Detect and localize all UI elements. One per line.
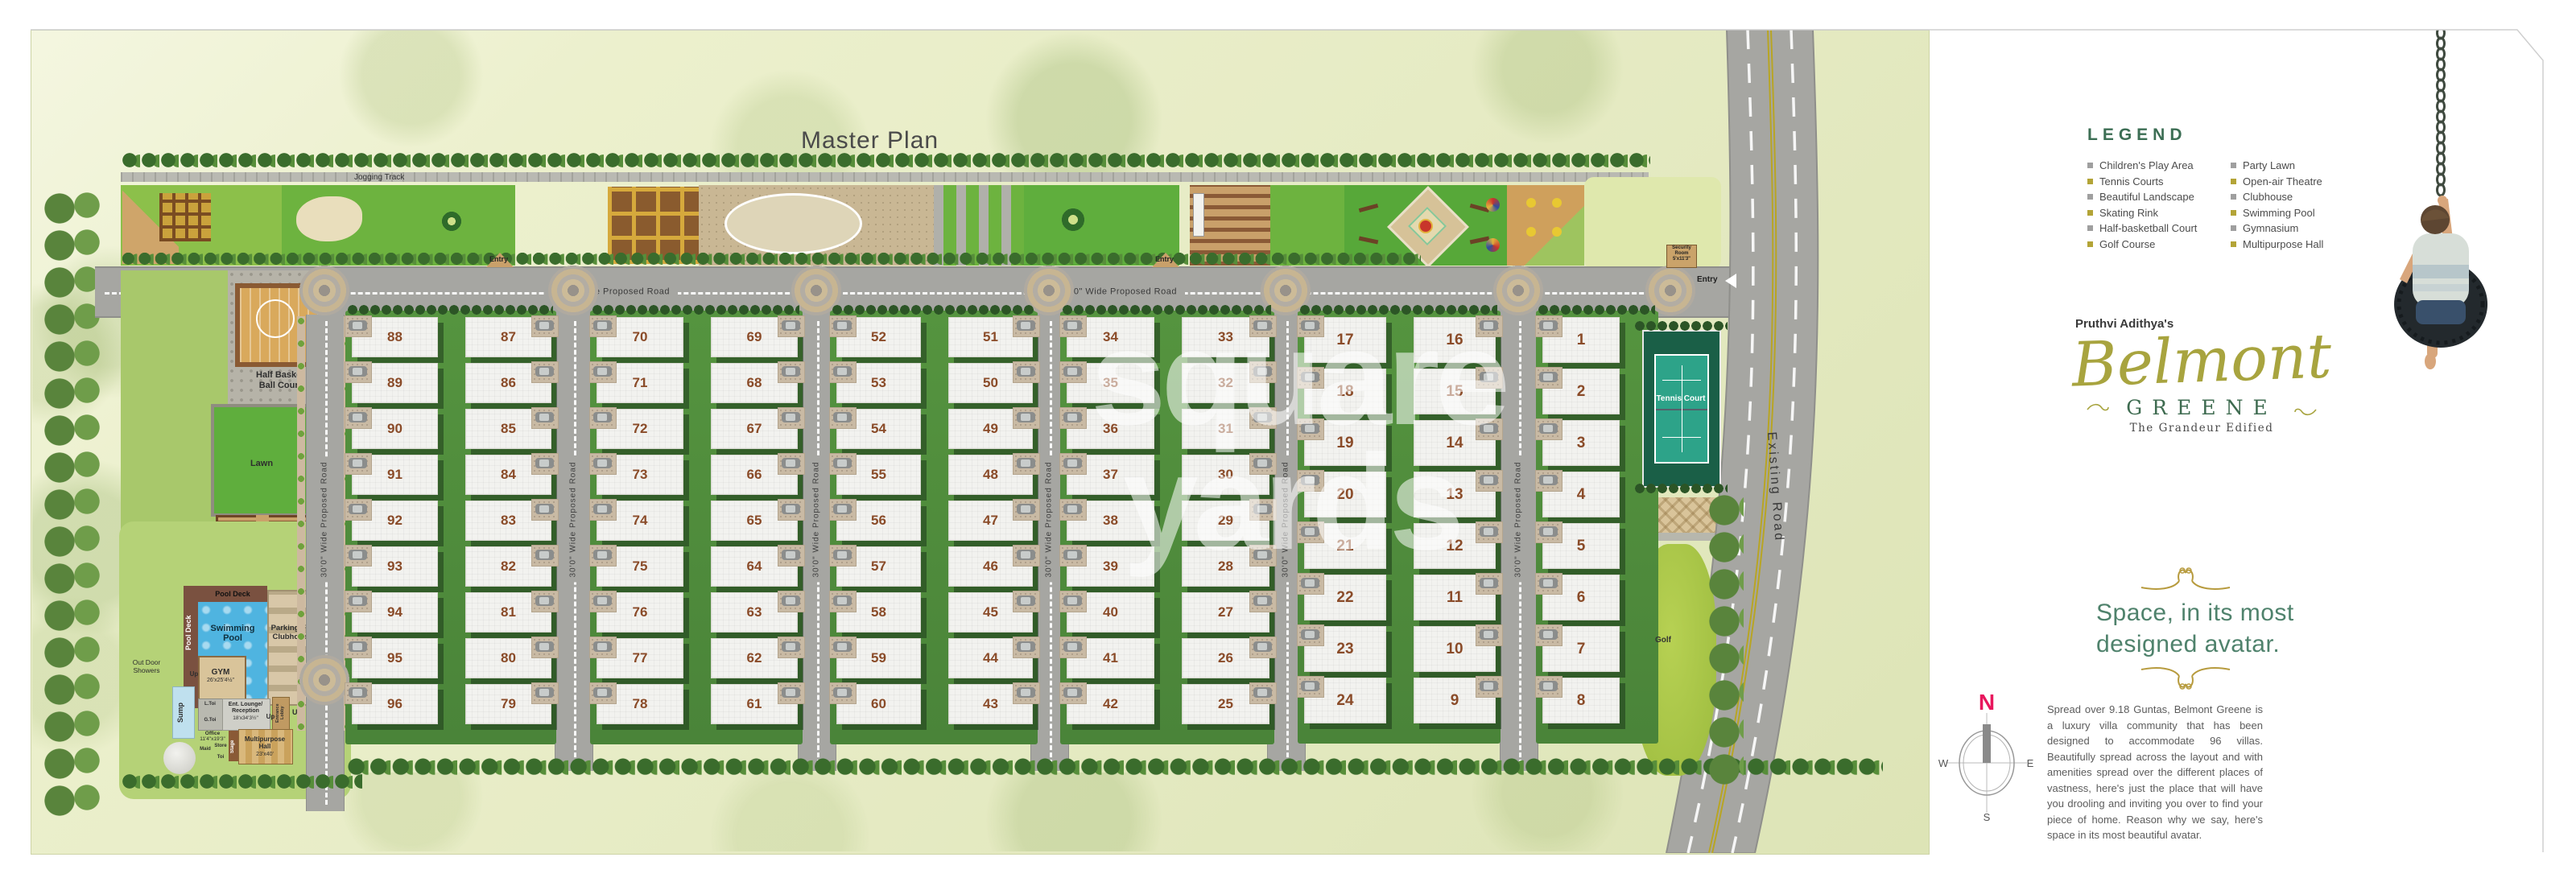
legend-bullet: [2231, 163, 2236, 168]
car-icon: [1253, 412, 1272, 422]
plot-number: 93: [387, 558, 402, 575]
car-icon: [535, 550, 554, 560]
plot-number: 63: [747, 604, 762, 620]
plot-number: 80: [501, 650, 516, 666]
car-icon: [1017, 458, 1035, 468]
car-icon: [1539, 372, 1558, 382]
legend-label: Multipurpose Hall: [2243, 238, 2323, 250]
plot: 91: [352, 455, 438, 495]
legend-label: Golf Course: [2099, 238, 2155, 250]
plot-number: 22: [1336, 589, 1353, 607]
driveway-carpad: [1059, 315, 1087, 337]
plot: 6: [1542, 575, 1620, 620]
legend-column-2: Party LawnOpen-air TheatreClubhouseSwimm…: [2231, 158, 2323, 252]
plot: 5: [1542, 523, 1620, 569]
ornament-bottom: [2137, 665, 2234, 694]
plot: 79: [465, 684, 551, 724]
driveway-carpad: [829, 453, 857, 475]
car-icon: [1480, 578, 1498, 588]
plot: 85: [465, 409, 551, 449]
driveway-carpad: [1297, 418, 1324, 440]
car-icon: [782, 687, 800, 698]
driveway-carpad: [778, 682, 805, 704]
driveway-carpad: [1476, 573, 1503, 595]
plot: 95: [352, 638, 438, 678]
car-icon: [1301, 475, 1319, 485]
plot-number: 46: [983, 558, 998, 575]
plot-number: 29: [1218, 513, 1233, 529]
plot: 31: [1182, 409, 1269, 449]
car-icon: [1253, 641, 1272, 652]
legend-label: Party Lawn: [2243, 159, 2295, 171]
driveway-carpad: [778, 545, 805, 567]
car-icon: [593, 320, 612, 331]
plot-number: 48: [983, 467, 998, 483]
plot-number: 24: [1336, 692, 1353, 710]
plot-number: 11: [1447, 589, 1463, 607]
driveway-carpad: [1249, 361, 1277, 383]
plot: 48: [948, 455, 1033, 495]
stage-label: Stage: [230, 734, 235, 760]
driveway-carpad: [1013, 453, 1040, 475]
plot-number: 40: [1103, 604, 1118, 620]
car-icon: [782, 595, 800, 606]
vertical-road-label: 30'0" Wide Proposed Road: [1514, 431, 1523, 608]
driveway-carpad: [531, 637, 559, 658]
car-icon: [1301, 629, 1319, 640]
driveway-carpad: [1476, 676, 1503, 698]
car-icon: [593, 595, 612, 606]
car-icon: [1017, 504, 1035, 514]
plot: 21: [1304, 523, 1386, 569]
car-icon: [1017, 320, 1035, 331]
fitness-dot-2: [1552, 198, 1562, 208]
pergola: [159, 193, 211, 241]
plot: 75: [597, 546, 683, 587]
plot-number: 82: [501, 558, 516, 575]
plot: 34: [1067, 317, 1154, 357]
driveway-carpad: [345, 315, 372, 337]
plot: 51: [948, 317, 1033, 357]
driveway-carpad: [1297, 573, 1324, 595]
car-icon: [349, 366, 367, 377]
legend-bullet: [2087, 194, 2093, 200]
plot: 70: [597, 317, 683, 357]
plot-number: 31: [1218, 421, 1233, 437]
legend-item: Tennis Courts: [2087, 174, 2197, 190]
driveway-carpad: [589, 545, 617, 567]
plot-number: 73: [633, 467, 648, 483]
plot-number: 41: [1103, 650, 1118, 666]
bottom-tree-row-1: [346, 756, 1883, 785]
plot-number: 52: [871, 329, 886, 345]
driveway-carpad: [1535, 573, 1563, 595]
plot-number: 89: [387, 375, 402, 391]
driveway-carpad: [345, 545, 372, 567]
driveway-carpad: [1059, 682, 1087, 704]
driveway-carpad: [1013, 682, 1040, 704]
plot-number: 19: [1336, 435, 1353, 452]
plot: 59: [836, 638, 921, 678]
driveway-carpad: [829, 361, 857, 383]
driveway-carpad: [1013, 361, 1040, 383]
plot-number: 26: [1218, 650, 1233, 666]
svg-text:S: S: [1984, 811, 1991, 822]
plot-number: 59: [871, 650, 886, 666]
plot: 81: [465, 592, 551, 633]
plot-number: 7: [1577, 641, 1586, 658]
plot-number: 25: [1218, 696, 1233, 712]
car-icon: [349, 504, 367, 514]
driveway-carpad: [1476, 470, 1503, 492]
driveway-carpad: [589, 407, 617, 429]
plot-number: 43: [983, 696, 998, 712]
plot: 37: [1067, 455, 1154, 495]
car-icon: [833, 595, 852, 606]
legend-column-1: Children's Play AreaTennis CourtsBeautif…: [2087, 158, 2197, 252]
car-icon: [1063, 687, 1082, 698]
plot-number: 92: [387, 513, 402, 529]
plot-number: 95: [387, 650, 402, 666]
legend-label: Beautiful Landscape: [2099, 191, 2194, 203]
legend-heading: LEGEND: [2087, 126, 2187, 145]
plot: 76: [597, 592, 683, 633]
car-icon: [782, 641, 800, 652]
brand-name-script: Belmont: [2048, 318, 2356, 402]
driveway-carpad: [1249, 407, 1277, 429]
plot: 23: [1304, 626, 1386, 672]
plot-number: 53: [871, 375, 886, 391]
plot-number: 6: [1577, 589, 1586, 607]
plot: 55: [836, 455, 921, 495]
plot-number: 51: [983, 329, 998, 345]
plot-number: 23: [1336, 641, 1353, 658]
reception-label: Ent. Lounge/ Reception: [223, 702, 268, 715]
driveway-carpad: [531, 591, 559, 612]
plot: 57: [836, 546, 921, 587]
plot: 18: [1304, 369, 1386, 414]
plot: 33: [1182, 317, 1269, 357]
car-icon: [1017, 641, 1035, 652]
plot: 14: [1414, 420, 1496, 466]
plot-number: 81: [501, 604, 516, 620]
car-icon: [593, 550, 612, 560]
plot: 65: [711, 501, 798, 541]
car-icon: [1539, 681, 1558, 691]
car-icon: [1253, 687, 1272, 698]
plot-number: 50: [983, 375, 998, 391]
car-icon: [1539, 423, 1558, 434]
driveway-carpad: [1297, 676, 1324, 698]
legend-bullet: [2231, 241, 2236, 247]
brochure-page: Master Plan Jogging Track Security Room …: [0, 0, 2576, 886]
sump-label: Sump: [176, 694, 184, 731]
driveway-carpad: [1297, 624, 1324, 646]
tennis-court-label: Tennis Court: [1645, 394, 1716, 403]
description: Spread over 9.18 Guntas, Belmont Greene …: [2047, 702, 2263, 843]
car-icon: [1253, 320, 1272, 331]
car-icon: [1539, 475, 1558, 485]
plot: 43: [948, 684, 1033, 724]
plot: 24: [1304, 678, 1386, 723]
plot-number: 56: [871, 513, 886, 529]
up-label-1: Up: [186, 670, 202, 678]
legend-label: Swimming Pool: [2243, 207, 2315, 219]
driveway-carpad: [1297, 521, 1324, 543]
driveway-carpad: [531, 315, 559, 337]
driveway-carpad: [531, 407, 559, 429]
car-icon: [1480, 629, 1498, 640]
plot-number: 16: [1446, 332, 1463, 349]
plot: 35: [1067, 363, 1154, 403]
driveway-carpad: [829, 682, 857, 704]
driveway-carpad: [1059, 453, 1087, 475]
plot-number: 5: [1577, 538, 1586, 555]
legend-item: Beautiful Landscape: [2087, 189, 2197, 205]
plot-number: 13: [1446, 486, 1463, 504]
car-icon: [782, 366, 800, 377]
toi-label: Toi: [211, 755, 230, 760]
plot: 50: [948, 363, 1033, 403]
vertical-road-label: 30'0" Wide Proposed Road: [1282, 431, 1290, 608]
fitness-dot-4: [1552, 227, 1562, 237]
plot: 20: [1304, 472, 1386, 517]
car-icon: [833, 366, 852, 377]
swing-chain: [2438, 30, 2445, 196]
svg-text:W: W: [1938, 757, 1949, 769]
legend-label: Clubhouse: [2243, 191, 2293, 203]
car-icon: [1253, 504, 1272, 514]
plot-number: 77: [633, 650, 648, 666]
entry-label-2: Entry: [1155, 255, 1174, 263]
plot-number: 37: [1103, 467, 1118, 483]
legend-label: Tennis Courts: [2099, 175, 2163, 188]
legend-bullet: [2087, 241, 2093, 247]
legend-bullet: [2231, 225, 2236, 231]
plot: 11: [1414, 575, 1496, 620]
car-icon: [1063, 550, 1082, 560]
car-icon: [1253, 550, 1272, 560]
driveway-carpad: [1249, 315, 1277, 337]
plot: 39: [1067, 546, 1154, 587]
plot: 78: [597, 684, 683, 724]
plot-number: 18: [1336, 383, 1353, 401]
driveway-carpad: [1059, 407, 1087, 429]
legend-item: Party Lawn: [2231, 158, 2323, 174]
gym-dims: 26'x25'4½": [198, 678, 243, 683]
store-label: Store: [211, 744, 230, 748]
plot: 89: [352, 363, 438, 403]
driveway-carpad: [345, 637, 372, 658]
plot-number: 91: [387, 467, 402, 483]
driveway-carpad: [1013, 499, 1040, 521]
driveway-carpad: [1249, 545, 1277, 567]
plot-number: 30: [1218, 467, 1233, 483]
plot-number: 96: [387, 696, 402, 712]
driveway-carpad: [1059, 545, 1087, 567]
plot: 87: [465, 317, 551, 357]
plot-number: 3: [1577, 435, 1586, 452]
car-icon: [1480, 475, 1498, 485]
plot: 88: [352, 317, 438, 357]
plot-number: 67: [747, 421, 762, 437]
car-icon: [535, 458, 554, 468]
driveway-carpad: [1013, 545, 1040, 567]
fitness-dot-1: [1526, 198, 1536, 208]
svg-text:E: E: [2027, 757, 2034, 769]
driveway-carpad: [531, 682, 559, 704]
plot: 46: [948, 546, 1033, 587]
gym-label: GYM: [200, 668, 242, 677]
driveway-carpad: [1535, 418, 1563, 440]
tennis-court: Tennis Court: [1642, 330, 1721, 488]
driveway-carpad: [1249, 682, 1277, 704]
plot: 83: [465, 501, 551, 541]
plot-number: 28: [1218, 558, 1233, 575]
driveway-carpad: [589, 637, 617, 658]
plot-number: 49: [983, 421, 998, 437]
basketball-center-circle: [256, 299, 295, 338]
legend-item: Gymnasium: [2231, 220, 2323, 237]
plot-number: 74: [633, 513, 648, 529]
vertical-road-label: 30'0" Wide Proposed Road: [1045, 431, 1054, 608]
security-room: Security Room 5'x11'3": [1666, 245, 1697, 268]
legend-bullet: [2231, 179, 2236, 184]
plot-number: 35: [1103, 375, 1118, 391]
driveway-carpad: [345, 499, 372, 521]
roundabout: [299, 654, 350, 706]
plot: 94: [352, 592, 438, 633]
legend-label: Gymnasium: [2243, 222, 2298, 234]
plot: 77: [597, 638, 683, 678]
car-icon: [1301, 526, 1319, 537]
headline: Space, in its most designed avatar.: [2096, 597, 2294, 660]
plot-number: 61: [747, 696, 762, 712]
plot: 69: [711, 317, 798, 357]
driveway-carpad: [778, 499, 805, 521]
legend-bullet: [2087, 210, 2093, 216]
brand-curl-left: [2086, 403, 2110, 416]
block-tree-row: [347, 304, 553, 315]
legend-label: Half-basketball Court: [2099, 222, 2197, 234]
car-icon: [1480, 423, 1498, 434]
plot-number: 71: [633, 375, 648, 391]
driveway-carpad: [829, 407, 857, 429]
driveway-carpad: [1249, 499, 1277, 521]
car-icon: [535, 320, 554, 331]
plot-number: 66: [747, 467, 762, 483]
up-label-2: Up: [262, 713, 279, 720]
car-icon: [535, 595, 554, 606]
plot: 60: [836, 684, 921, 724]
driveway-carpad: [1059, 591, 1087, 612]
driveway-carpad: [531, 545, 559, 567]
legend-item: Skating Rink: [2087, 205, 2197, 221]
plot-number: 64: [747, 558, 762, 575]
car-icon: [833, 412, 852, 422]
plot: 38: [1067, 501, 1154, 541]
car-icon: [1063, 458, 1082, 468]
plot-number: 38: [1103, 513, 1118, 529]
driveway-carpad: [778, 453, 805, 475]
driveway-carpad: [1476, 315, 1503, 337]
driveway-carpad: [1476, 418, 1503, 440]
svg-text:N: N: [1979, 690, 1995, 715]
legend-item: Clubhouse: [2231, 189, 2323, 205]
plot: 49: [948, 409, 1033, 449]
driveway-carpad: [1249, 637, 1277, 658]
car-icon: [1017, 595, 1035, 606]
roundabout: [1492, 265, 1544, 316]
car-icon: [349, 641, 367, 652]
plot-number: 12: [1446, 538, 1463, 555]
plot-number: 21: [1336, 538, 1353, 555]
driveway-carpad: [589, 682, 617, 704]
vertical-road-label: 30'0" Wide Proposed Road: [812, 431, 821, 608]
plot-number: 2: [1577, 383, 1586, 401]
legend-bullet: [2087, 163, 2093, 168]
plot: 52: [836, 317, 921, 357]
plot-number: 17: [1336, 332, 1353, 349]
plot: 16: [1414, 317, 1496, 363]
plot: 10: [1414, 626, 1496, 672]
roundabout: [299, 265, 350, 316]
driveway-carpad: [1249, 591, 1277, 612]
vertical-road-label: 30'0" Wide Proposed Road: [320, 431, 329, 608]
driveway-carpad: [1535, 470, 1563, 492]
car-icon: [833, 687, 852, 698]
legend-item: Golf Course: [2087, 237, 2197, 253]
driveway-carpad: [778, 361, 805, 383]
legend-bullet: [2231, 194, 2236, 200]
plot-number: 60: [871, 696, 886, 712]
brand-curl-right: [2293, 403, 2318, 416]
plot: 62: [711, 638, 798, 678]
entry-label-main: Entry: [1697, 275, 1718, 284]
plot: 96: [352, 684, 438, 724]
water-tank: [163, 742, 196, 774]
plot-number: 32: [1218, 375, 1233, 391]
driveway-carpad: [345, 361, 372, 383]
plot-number: 86: [501, 375, 516, 391]
driveway-carpad: [1013, 407, 1040, 429]
block-tree-row: [1299, 304, 1497, 315]
plot: 45: [948, 592, 1033, 633]
plot: 86: [465, 363, 551, 403]
driveway-carpad: [829, 499, 857, 521]
car-icon: [1480, 320, 1498, 331]
plot-number: 70: [633, 329, 648, 345]
plot: 26: [1182, 638, 1269, 678]
driveway-carpad: [1013, 637, 1040, 658]
car-icon: [833, 550, 852, 560]
legend-item: Half-basketball Court: [2087, 220, 2197, 237]
car-icon: [1063, 504, 1082, 514]
car-icon: [1017, 366, 1035, 377]
plot-number: 90: [387, 421, 402, 437]
car-icon: [1539, 578, 1558, 588]
plot-number: 27: [1218, 604, 1233, 620]
plot-number: 10: [1446, 641, 1463, 658]
car-icon: [833, 320, 852, 331]
driveway-carpad: [778, 637, 805, 658]
plot: 8: [1542, 678, 1620, 723]
plot-number: 76: [633, 604, 648, 620]
plot: 30: [1182, 455, 1269, 495]
driveway-carpad: [778, 407, 805, 429]
block-tree-row: [592, 304, 799, 315]
plot-number: 85: [501, 421, 516, 437]
